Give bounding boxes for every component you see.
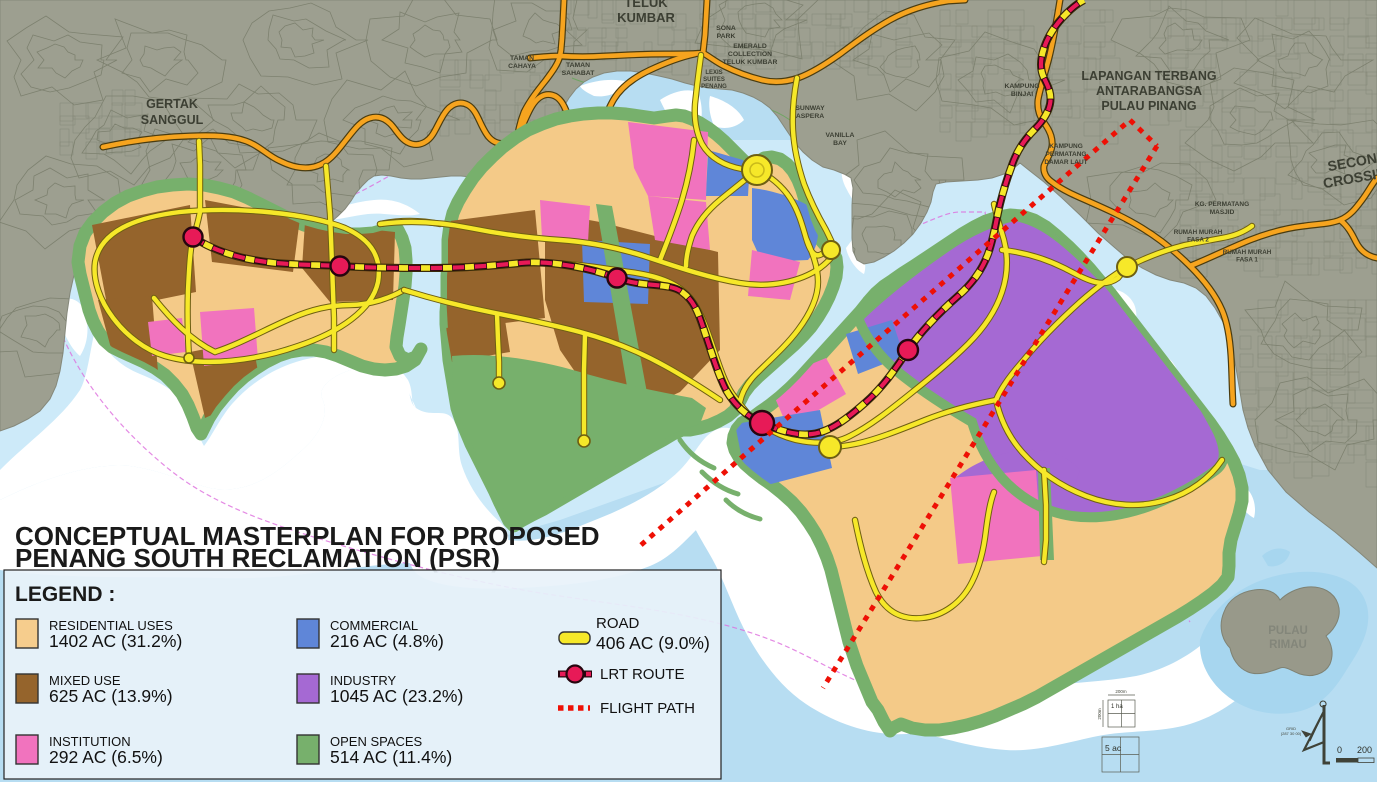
svg-text:LRT ROUTE: LRT ROUTE (600, 666, 684, 683)
svg-text:CAHAYA: CAHAYA (508, 63, 536, 70)
svg-text:SUITES: SUITES (703, 77, 725, 83)
svg-text:ASPERA: ASPERA (796, 113, 824, 120)
svg-text:KAMPUNG: KAMPUNG (1049, 143, 1083, 150)
svg-text:COLLECTION: COLLECTION (728, 51, 772, 58)
svg-text:SANGGUL: SANGGUL (141, 113, 204, 127)
svg-text:LAPANGAN TERBANG: LAPANGAN TERBANG (1081, 69, 1216, 83)
svg-text:1045 AC (23.2%): 1045 AC (23.2%) (330, 686, 463, 706)
svg-text:PENANG SOUTH RECLAMATION (PSR): PENANG SOUTH RECLAMATION (PSR) (15, 543, 500, 573)
svg-text:(287 30 00): (287 30 00) (1281, 731, 1302, 736)
svg-text:KG. PERMATANG: KG. PERMATANG (1195, 201, 1249, 208)
svg-text:5 ac: 5 ac (1105, 743, 1122, 753)
svg-text:ROAD: ROAD (596, 615, 640, 632)
svg-text:VANILLA: VANILLA (826, 132, 855, 139)
svg-text:TELUK: TELUK (624, 0, 668, 10)
svg-text:292 AC (6.5%): 292 AC (6.5%) (49, 747, 163, 767)
svg-text:MASJID: MASJID (1210, 209, 1235, 216)
svg-text:KUMBAR: KUMBAR (617, 10, 675, 25)
svg-text:PENANG: PENANG (701, 84, 727, 90)
svg-text:514 AC (11.4%): 514 AC (11.4%) (330, 747, 452, 767)
svg-text:200m: 200m (1115, 689, 1127, 694)
svg-text:1 ha: 1 ha (1111, 704, 1123, 710)
svg-text:GERTAK: GERTAK (146, 97, 198, 111)
svg-text:LEGEND :: LEGEND : (15, 583, 115, 606)
svg-text:PULAU: PULAU (1268, 625, 1308, 637)
svg-text:TAMAN: TAMAN (566, 62, 590, 69)
svg-text:BAY: BAY (833, 140, 847, 147)
svg-text:ANTARABANGSA: ANTARABANGSA (1096, 84, 1202, 98)
svg-text:PARK: PARK (717, 33, 736, 40)
svg-text:TAMAN: TAMAN (510, 55, 534, 62)
svg-text:FASA 2: FASA 2 (1187, 237, 1209, 244)
svg-text:EMERALD: EMERALD (733, 43, 767, 50)
svg-text:PULAU PINANG: PULAU PINANG (1101, 99, 1196, 113)
svg-text:RUMAH MURAH: RUMAH MURAH (1174, 229, 1223, 236)
svg-text:DAMAR LAUT: DAMAR LAUT (1044, 159, 1087, 166)
svg-text:200m: 200m (1097, 708, 1102, 720)
svg-text:LEXIS: LEXIS (705, 70, 722, 76)
svg-text:200: 200 (1357, 745, 1372, 755)
svg-text:FLIGHT PATH: FLIGHT PATH (600, 700, 695, 717)
svg-text:KAMPUNG: KAMPUNG (1004, 83, 1039, 90)
svg-text:BINJAI: BINJAI (1011, 91, 1033, 98)
svg-text:PERMATANG: PERMATANG (1046, 151, 1087, 158)
svg-text:TELUK KUMBAR: TELUK KUMBAR (723, 59, 778, 66)
svg-text:SUNWAY: SUNWAY (795, 105, 825, 112)
svg-text:216 AC (4.8%): 216 AC (4.8%) (330, 631, 444, 651)
svg-text:625 AC (13.9%): 625 AC (13.9%) (49, 686, 173, 706)
svg-text:RUMAH MURAH: RUMAH MURAH (1223, 249, 1272, 256)
svg-text:1402 AC (31.2%): 1402 AC (31.2%) (49, 631, 182, 651)
svg-text:FASA 1: FASA 1 (1236, 257, 1258, 264)
svg-text:406 AC (9.0%): 406 AC (9.0%) (596, 633, 710, 653)
svg-text:SONA: SONA (716, 25, 736, 32)
svg-text:0: 0 (1337, 745, 1342, 755)
svg-text:SAHABAT: SAHABAT (562, 70, 596, 77)
svg-text:RIMAU: RIMAU (1269, 639, 1307, 651)
